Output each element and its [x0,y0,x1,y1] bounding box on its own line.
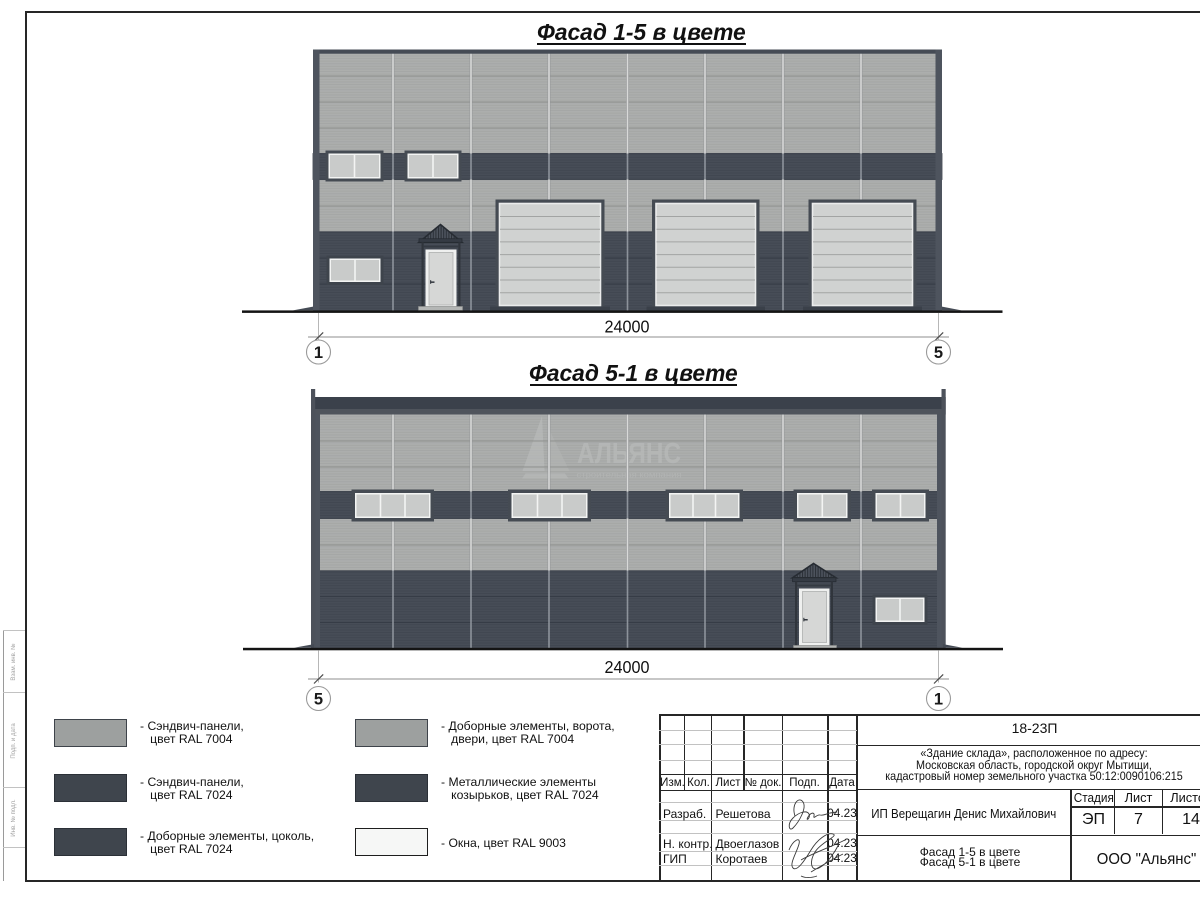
svg-text:1: 1 [934,691,943,709]
svg-text:5: 5 [314,691,323,709]
svg-text:24000: 24000 [605,317,650,337]
svg-text:АЛЬЯНС: АЛЬЯНС [577,438,681,470]
svg-text:строительная компания: строительная компания [577,470,682,480]
svg-text:24000: 24000 [605,657,650,677]
